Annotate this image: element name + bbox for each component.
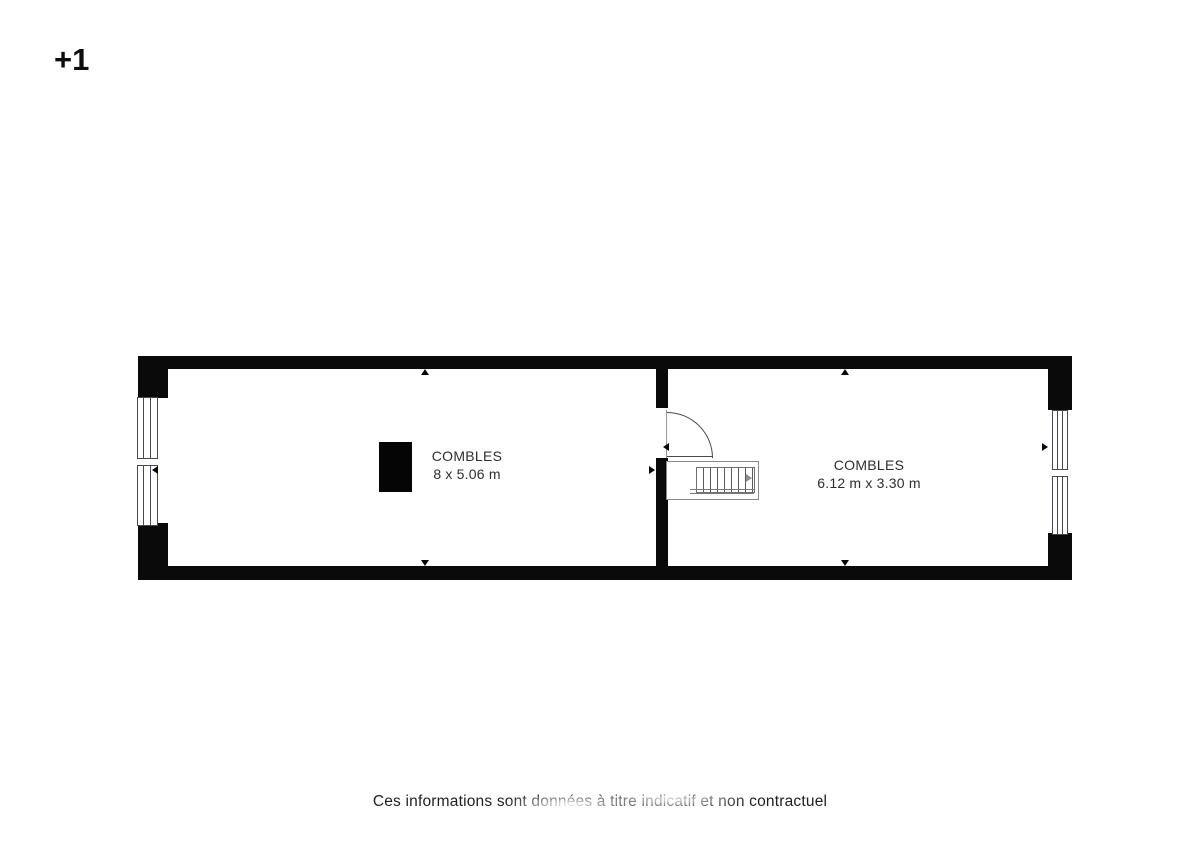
marker-arrow-down-icon [841, 560, 849, 566]
door-leaf-line [667, 456, 713, 457]
marker-arrow-left-icon [663, 443, 669, 451]
staircase-rail-line [690, 489, 754, 494]
room-label-right: COMBLES 6.12 m x 3.30 m [789, 456, 949, 492]
window-divider [137, 458, 158, 466]
window-right [1052, 410, 1068, 535]
room-label-left: COMBLES 8 x 5.06 m [387, 447, 547, 483]
wall-right-lower [1048, 533, 1072, 580]
wall-partition-upper [656, 356, 668, 408]
marker-arrow-right-icon [1042, 443, 1048, 451]
door-swing-arc [667, 412, 713, 458]
marker-arrow-right-icon [649, 466, 655, 474]
floor-level-label: +1 [54, 42, 89, 78]
wall-bottom [138, 566, 1072, 580]
marker-arrow-up-icon [421, 369, 429, 375]
disclaimer-text: Ces informations sont données à titre in… [0, 793, 1200, 811]
room-name: COMBLES [387, 447, 547, 465]
wall-top [138, 356, 1072, 369]
wall-left-upper [138, 356, 168, 398]
room-name: COMBLES [789, 456, 949, 474]
window-left [137, 397, 158, 526]
marker-arrow-up-icon [841, 369, 849, 375]
staircase-direction-arrow-icon [746, 474, 752, 482]
marker-arrow-down-icon [421, 560, 429, 566]
room-dimensions: 6.12 m x 3.30 m [789, 474, 949, 492]
floor-plan-page: +1 COMBLES 8 x 5.06 m COMBLES 6.12 m x 3… [0, 0, 1200, 849]
wall-right-upper [1048, 356, 1072, 410]
marker-arrow-left-icon [152, 466, 158, 474]
window-divider [1052, 469, 1068, 477]
wall-left-lower [138, 523, 168, 580]
room-dimensions: 8 x 5.06 m [387, 465, 547, 483]
